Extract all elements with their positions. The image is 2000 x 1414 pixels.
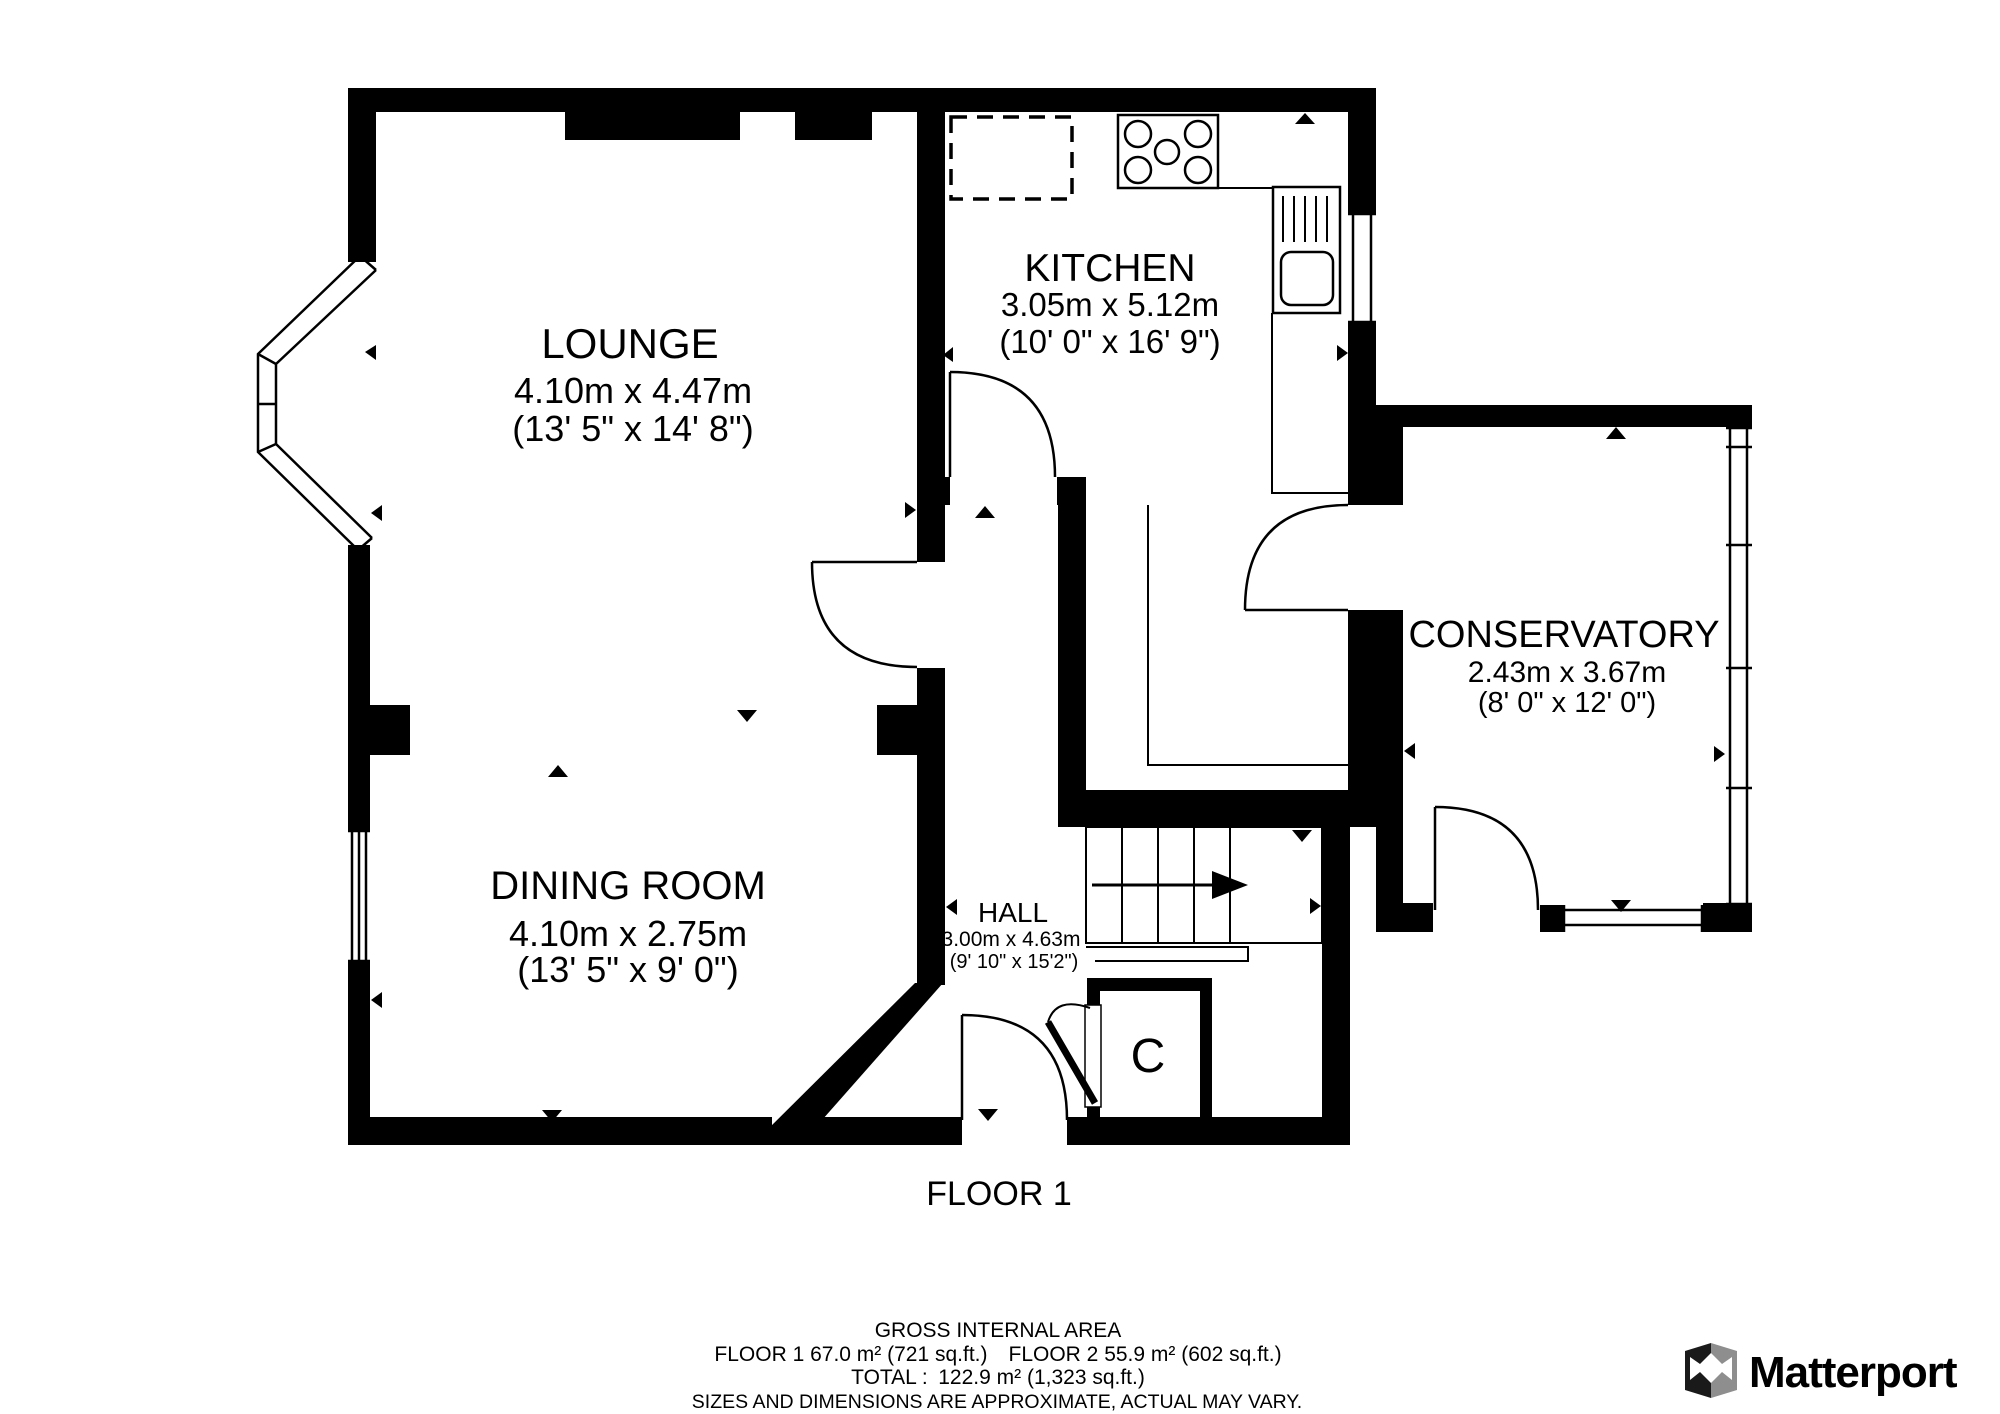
brand-logo: Matterport: [1685, 1343, 1958, 1398]
wall-bottom-left: [348, 1117, 772, 1145]
wall-kitchen-south-left: [917, 477, 950, 505]
dining-metric: 4.10m x 2.75m: [509, 913, 747, 954]
marker-up-icon: [1606, 427, 1626, 439]
wall-closet-right: [1200, 978, 1212, 1118]
marker-left-icon: [1404, 743, 1415, 759]
wall-top-thick-a: [565, 110, 740, 140]
footer-title: GROSS INTERNAL AREA: [875, 1319, 1122, 1342]
conservatory-metric: 2.43m x 3.67m: [1468, 656, 1666, 689]
kitchen-door-icon: [950, 372, 1055, 477]
marker-right-icon: [1337, 345, 1348, 361]
wall-conservatory-top: [1370, 405, 1752, 427]
room-labels: LOUNGE 4.10m x 4.47m (13' 5" x 14' 8") K…: [490, 247, 1719, 1213]
conservatory-imperial: (8' 0" x 12' 0"): [1478, 687, 1656, 719]
wall-hall-right: [1322, 827, 1350, 1145]
staircase: [1086, 827, 1322, 961]
wall-top: [348, 88, 1376, 112]
kitchen-metric: 3.05m x 5.12m: [1001, 286, 1219, 323]
wall-stairwell-vertical: [1058, 477, 1086, 792]
appliance-space-dashed-icon: [951, 117, 1072, 199]
marker-up-icon: [1295, 113, 1315, 124]
marker-left-icon: [371, 992, 382, 1008]
floorplan-canvas: LOUNGE 4.10m x 4.47m (13' 5" x 14' 8") K…: [0, 0, 2000, 1414]
marker-up-icon: [975, 506, 995, 518]
marker-left-icon: [946, 899, 957, 915]
matterport-logo-text: Matterport: [1749, 1348, 1958, 1397]
marker-up-icon: [548, 765, 568, 777]
conservatory-glazing-icon: [1726, 427, 1752, 905]
pier-left: [370, 705, 410, 755]
wall-right-upper: [1348, 88, 1376, 213]
matterport-logo-icon: [1685, 1343, 1737, 1398]
kitchen-open-boundary: [1148, 505, 1348, 765]
wall-conservatory-jamb: [1540, 905, 1563, 932]
footer-disclaimer: SIZES AND DIMENSIONS ARE APPROXIMATE, AC…: [692, 1391, 1302, 1413]
understairs-lines: [1086, 947, 1248, 961]
marker-left-icon: [365, 345, 376, 360]
dining-name: DINING ROOM: [490, 864, 766, 908]
closet-door-icon: [1048, 1004, 1101, 1107]
lounge-imperial: (13' 5" x 14' 8"): [512, 408, 753, 449]
lounge-metric: 4.10m x 4.47m: [514, 370, 752, 411]
wall-left-upper: [348, 88, 376, 262]
wall-conservatory-left-b: [1376, 610, 1403, 905]
lounge-door-icon: [812, 562, 917, 667]
hall-name: HALL: [978, 897, 1048, 928]
wall-conservatory-corner-bl: [1376, 903, 1433, 932]
conservatory-entry-door-icon: [1245, 505, 1348, 610]
kitchen-imperial: (10' 0" x 16' 9"): [999, 323, 1220, 360]
marker-down-icon: [978, 1109, 998, 1121]
closet-label: C: [1131, 1030, 1166, 1083]
wall-left-mid: [348, 545, 370, 830]
wall-right-lower: [1348, 610, 1376, 792]
hob-icon: [1118, 115, 1218, 188]
wall-conservatory-corner-br: [1703, 903, 1752, 932]
wall-closet-left-b: [1087, 1106, 1100, 1120]
kitchen-counter-return: [1272, 313, 1348, 493]
dining-imperial: (13' 5" x 9' 0"): [517, 949, 738, 990]
dining-window-icon: [348, 830, 370, 962]
lounge-name: LOUNGE: [541, 320, 718, 367]
marker-left-icon: [371, 505, 382, 521]
footer: GROSS INTERNAL AREA FLOOR 1 67.0 m² (721…: [692, 1319, 1302, 1413]
kitchen-name: KITCHEN: [1024, 247, 1195, 290]
marker-right-icon: [1714, 746, 1725, 762]
conservatory-bottom-window-icon: [1563, 905, 1703, 932]
wall-conservatory-left-a: [1376, 427, 1403, 505]
wall-bottom-mid: [793, 1117, 962, 1145]
hall-metric: 3.00m x 4.63m: [942, 928, 1081, 951]
conservatory-name: CONSERVATORY: [1408, 614, 1719, 656]
conservatory-exterior-door-icon: [1435, 807, 1538, 910]
kitchen-window-icon: [1348, 213, 1376, 323]
wall-top-thick-b: [795, 110, 872, 140]
pier-right: [877, 705, 917, 755]
wall-closet-top: [1087, 978, 1212, 991]
wall-stairwell-horizontal: [1058, 790, 1376, 827]
marker-right-icon: [905, 502, 916, 518]
hall-imperial: (9' 10" x 15'2"): [950, 951, 1079, 973]
floor-label: FLOOR 1: [926, 1175, 1071, 1213]
marker-down-icon: [737, 710, 757, 722]
footer-areas: FLOOR 1 67.0 m² (721 sq.ft.) FLOOR 2 55.…: [714, 1343, 1281, 1366]
wall-bottom-right: [1067, 1117, 1350, 1145]
bay-window-icon: [258, 256, 376, 550]
sink-icon: [1273, 187, 1340, 313]
footer-total: TOTAL : 122.9 m² (1,323 sq.ft.): [851, 1366, 1145, 1389]
